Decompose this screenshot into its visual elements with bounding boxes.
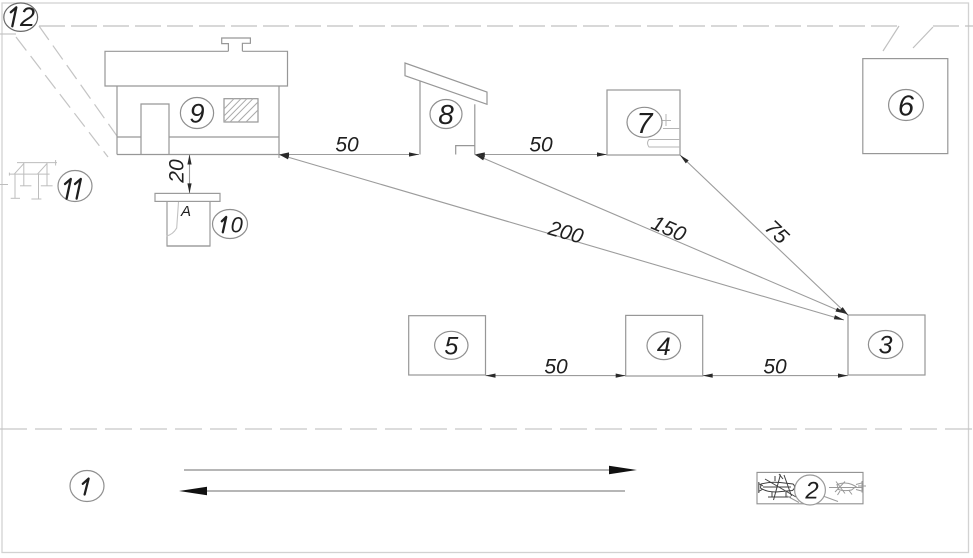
svg-text:4: 4 [657, 333, 671, 361]
svg-text:50: 50 [763, 356, 787, 379]
svg-text:0: 0 [231, 212, 244, 237]
svg-text:5: 5 [444, 332, 458, 360]
svg-text:A: A [180, 203, 191, 220]
svg-text:20: 20 [166, 159, 189, 184]
svg-text:200: 200 [545, 217, 586, 249]
svg-text:50: 50 [544, 356, 568, 379]
svg-text:8: 8 [438, 99, 454, 130]
svg-text:9: 9 [189, 99, 204, 129]
svg-text:2: 2 [804, 478, 818, 505]
svg-text:2: 2 [19, 2, 35, 32]
svg-text:7: 7 [636, 108, 654, 140]
svg-text:50: 50 [335, 134, 359, 157]
svg-text:150: 150 [648, 212, 690, 247]
svg-text:6: 6 [898, 91, 915, 123]
svg-text:75: 75 [760, 216, 793, 249]
svg-text:50: 50 [529, 134, 553, 157]
svg-text:3: 3 [879, 332, 893, 360]
